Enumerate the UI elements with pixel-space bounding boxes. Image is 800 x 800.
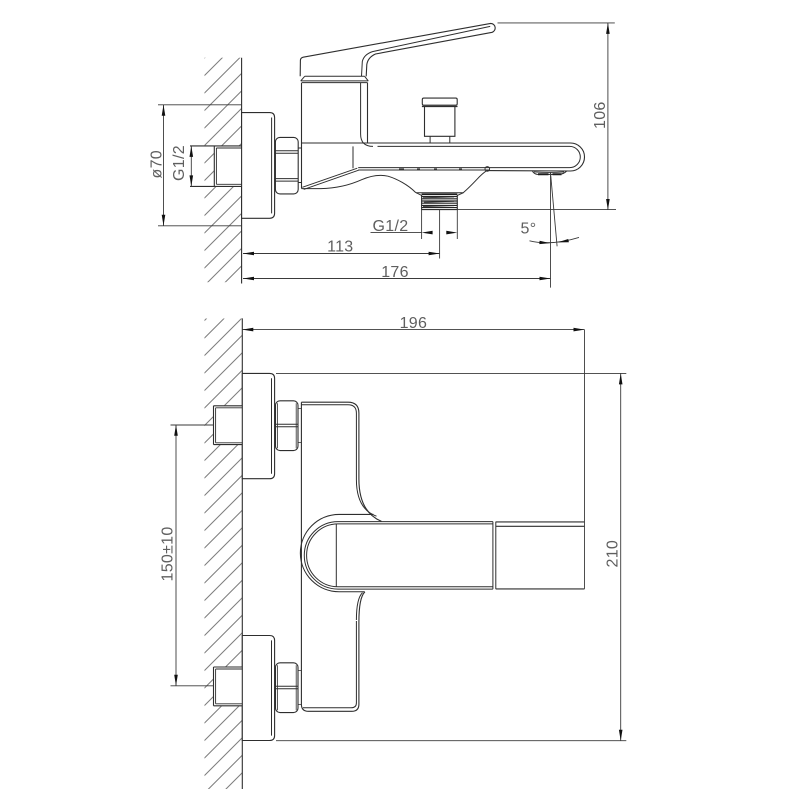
svg-text:106: 106 <box>592 101 609 129</box>
svg-text:G1/2: G1/2 <box>171 145 188 181</box>
svg-text:5°: 5° <box>521 220 537 237</box>
svg-text:210: 210 <box>605 540 622 568</box>
svg-text:150±10: 150±10 <box>159 526 176 581</box>
svg-text:113: 113 <box>327 238 353 255</box>
svg-text:196: 196 <box>400 315 428 332</box>
svg-text:176: 176 <box>381 264 409 281</box>
svg-text:ø70: ø70 <box>149 150 166 178</box>
svg-text:G1/2: G1/2 <box>373 218 409 235</box>
